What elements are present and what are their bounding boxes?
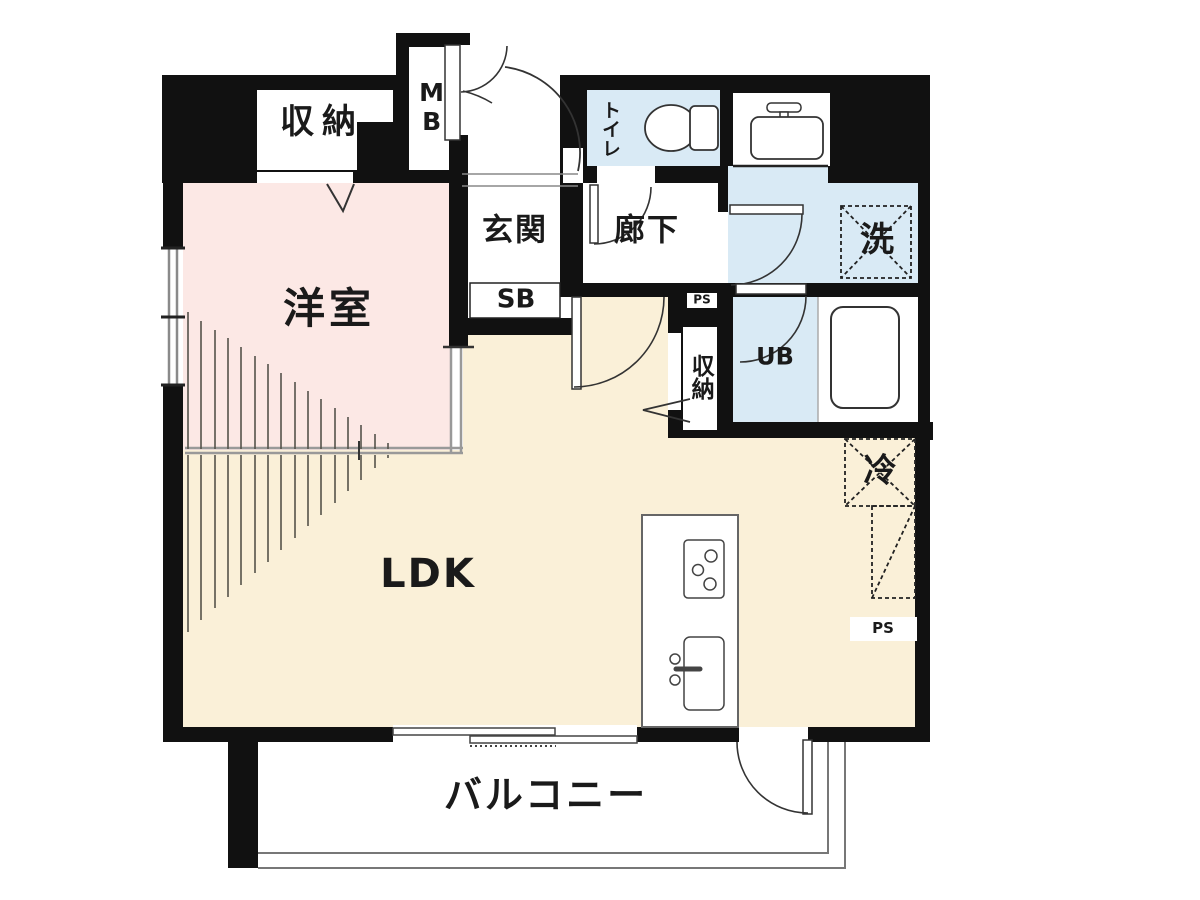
label-entrance: 玄関 (482, 215, 548, 248)
toilet-fixture (645, 105, 718, 151)
room-vestibule (460, 45, 560, 183)
label-storage-top: 収納 (280, 105, 364, 141)
label-hallway: 廊下 (614, 215, 680, 248)
label-storage-mid: 収納 (688, 354, 712, 400)
kitchen-counter (642, 515, 738, 727)
closet-mid-door (668, 333, 681, 410)
label-shoe-box: SB (497, 286, 536, 313)
toilet-door-leaf (590, 185, 598, 243)
ldk-door-leaf (572, 297, 581, 389)
balcony-door-arc (737, 742, 808, 813)
label-western-room: 洋室 (283, 287, 375, 331)
label-unit-bath: UB (756, 344, 794, 369)
ub-door-leaf (736, 284, 806, 294)
washroom-door-leaf (730, 205, 803, 214)
room-ldk-main (183, 450, 915, 727)
label-ldk: LDK (380, 553, 476, 595)
closet-top-door (257, 172, 353, 183)
floor-plan: 収納 MB 玄関 SB 廊下 トイレ 洗 UB 収納 PS PS 冷 洋室 LD… (0, 0, 1200, 900)
label-pipe-space-1: PS (693, 294, 710, 307)
room-ldk-2 (463, 335, 573, 450)
label-washer: 洗 (860, 223, 894, 259)
toilet-doorway (597, 166, 655, 183)
window-west (161, 248, 185, 385)
label-pipe-space-2: PS (872, 621, 894, 637)
label-balcony: バルコニー (444, 776, 648, 816)
room-ldk-4 (668, 438, 915, 450)
balcony-door-leaf (803, 740, 812, 814)
label-refrigerator: 冷 (864, 454, 897, 489)
kitchen-sink (684, 637, 724, 710)
label-meter-box: MB (418, 78, 444, 136)
bathtub (831, 307, 899, 408)
balcony-window (393, 725, 637, 746)
mb-door-leaf (445, 45, 460, 140)
label-toilet: トイレ (599, 101, 619, 158)
